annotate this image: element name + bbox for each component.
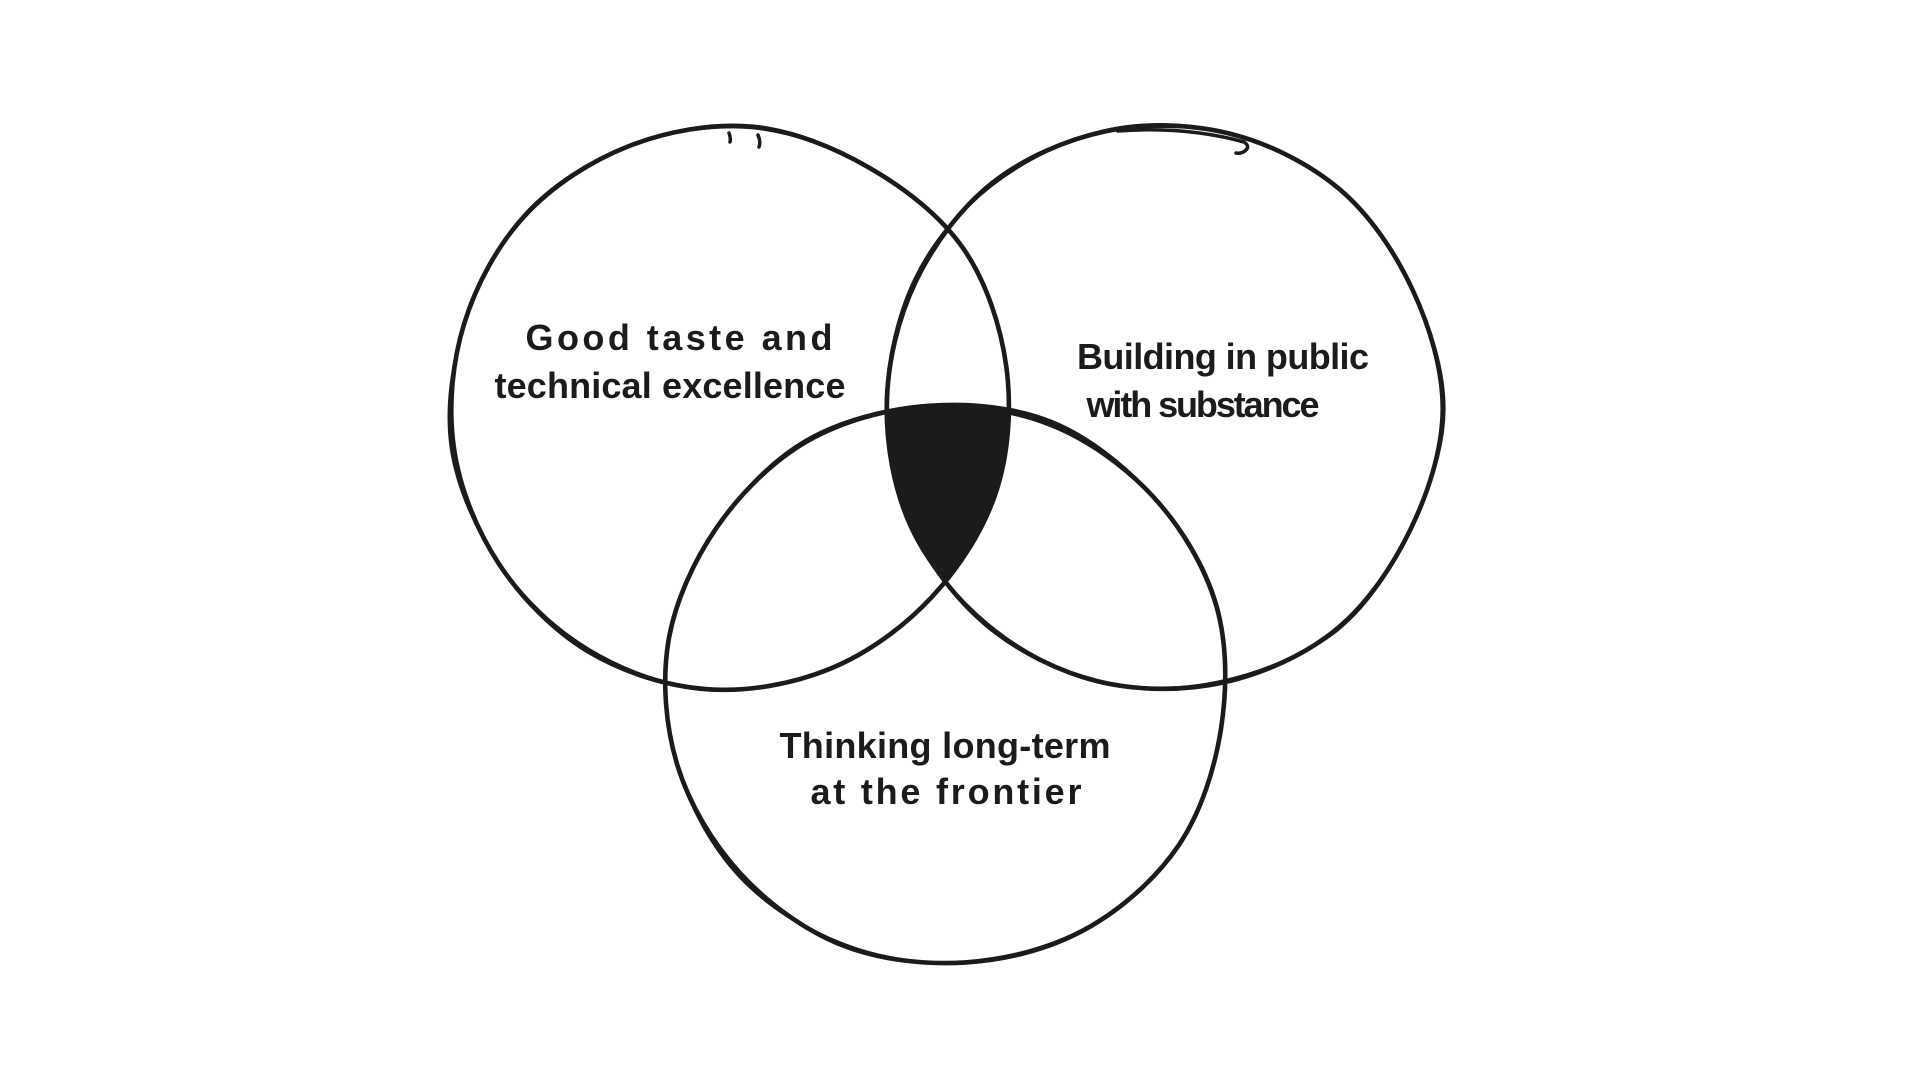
svg-text:Good taste and: Good taste and	[526, 317, 833, 358]
svg-text:technical excellence: technical excellence	[495, 365, 846, 406]
svg-text:Thinking long-term: Thinking long-term	[780, 725, 1111, 766]
svg-text:at the frontier: at the frontier	[811, 771, 1082, 812]
svg-text:Building in public: Building in public	[1077, 336, 1369, 377]
svg-text:with substance: with substance	[1086, 384, 1320, 425]
